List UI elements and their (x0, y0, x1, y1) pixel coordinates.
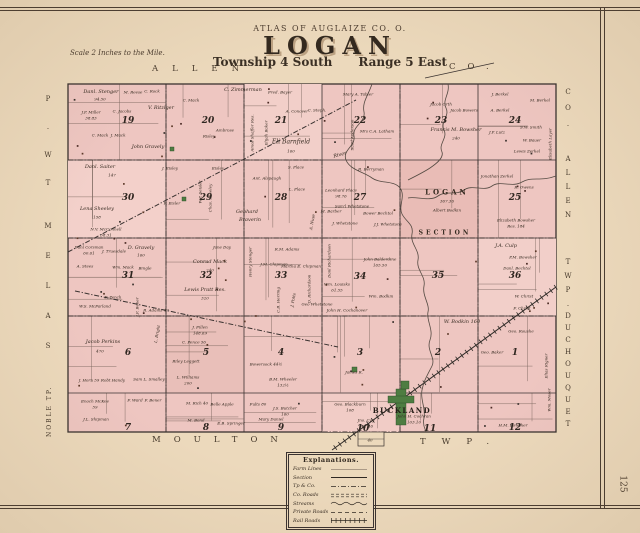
parcel-label: W. Bauer (523, 138, 541, 143)
border-label-moulton-twp: MOULTON (152, 435, 291, 445)
parcel-label: C. Pence 56 (182, 340, 206, 345)
border-label-duchouquet-twp-suffix: TWP. (564, 258, 572, 314)
parcel-label: Geo. Blackburn (334, 402, 365, 407)
parcel-label: 160 (287, 149, 295, 154)
parcel-label: Elijah Baker (264, 121, 269, 146)
parcel-label: Lena Sheeley (80, 206, 114, 212)
parcel-label: F. Christ (513, 306, 530, 311)
section-number: 7 (125, 423, 131, 433)
section-number: 11 (424, 424, 437, 434)
border-label-moulton-twp-suffix: TWP. (420, 437, 505, 447)
parcel-label: 470 (96, 349, 104, 354)
parcel-label: N.V. McConnell (90, 227, 121, 232)
parcel-label: 61.55 (331, 288, 342, 293)
parcel-label: Danl. Bechtol (503, 266, 530, 271)
border-label-noble-tp: NOBLE TP. (46, 373, 53, 437)
legend-row-label: Streams (293, 501, 329, 507)
parcel-label: V. Ritziger (148, 105, 174, 111)
section-number: 33 (275, 271, 288, 281)
parcel-label: F. Ward (127, 398, 142, 403)
legend-title: Explanations. (289, 456, 373, 464)
parcel-label: A. Conover (286, 109, 308, 114)
parcel-label: 132½ (277, 383, 289, 388)
parcel-label: Amos Shaffer Res. (250, 114, 255, 151)
parcel-label: 240 (452, 136, 460, 141)
section-number: 21 (275, 116, 288, 126)
parcel-label: Geo Whetstone (302, 302, 333, 307)
parcel-label: J.P. Miller (81, 110, 100, 115)
section-number: 8 (203, 423, 209, 433)
section-number: 30 (122, 193, 135, 203)
border-label-allen-top: ALLEN (152, 64, 253, 74)
parcel-label: J.J. Whetstone (374, 222, 402, 227)
section-number: 34 (354, 272, 367, 282)
parcel-label: Mary Daniel (258, 417, 283, 422)
parcel-label: J. Mack (111, 133, 126, 138)
section-number: 24 (509, 116, 522, 126)
parcel-label: 59 (92, 405, 97, 410)
parcel-label: Jacob Perkins (86, 339, 121, 345)
legend-row: Tp & Co. (289, 482, 373, 491)
parcel-label: Braverin (239, 217, 261, 223)
section-number: 2 (435, 348, 441, 358)
parcel-label: Danl. Saiter (85, 164, 115, 170)
parcel-label: J.A. Culp (495, 243, 517, 249)
legend-row: Rail Roads (289, 517, 373, 526)
parcel-label: F. Eisler (164, 201, 181, 206)
co-roads-symbol (329, 492, 369, 499)
streams-symbol (329, 500, 369, 507)
legend-row-label: Rail Roads (293, 518, 329, 524)
section-number: 35 (432, 271, 445, 281)
section-number: 25 (509, 193, 522, 203)
section-number: 9 (278, 423, 284, 433)
parcel-label: LOGAN (425, 188, 469, 197)
border-label-allen-co-suffix: CO. (564, 88, 572, 136)
parcel-label: 108 (346, 408, 354, 413)
parcel-label: D. Richardson (307, 275, 312, 304)
parcel-label: John H. Cochran (397, 414, 431, 419)
parcel-label: Wm. Louisks (324, 282, 350, 287)
parcel-label: W.S. McFarland (79, 304, 111, 309)
parcel-label: Riley Leggett (172, 359, 199, 364)
parcel-label: J. Whetstone (332, 221, 358, 226)
parcel-label: M. Berkel (530, 98, 550, 103)
parcel-label: Albert Bodkin (433, 208, 461, 213)
parcel-label: C. Zimmerman (224, 87, 262, 93)
parcel-label: J.P. Lutz (489, 130, 505, 135)
section-number: 32 (200, 271, 213, 281)
parcel-label: D. Gravely (128, 245, 155, 251)
parcel-label: C. Mack (183, 98, 200, 103)
section-number: 22 (354, 116, 367, 126)
parcel-label: 98.76 (335, 194, 346, 199)
parcel-label: L. Williams (177, 375, 200, 380)
parcel-label: Conrad Mack (193, 259, 227, 265)
section-number: 20 (202, 116, 215, 126)
rail-roads-symbol (329, 517, 369, 524)
parcel-label: F. Bener (145, 398, 162, 403)
section-number: 19 (122, 116, 135, 126)
parcel-label: Belle Apple (210, 402, 233, 407)
tp-co-line-symbol (329, 483, 369, 490)
border-label-salem-twp-upper: P.WT (44, 95, 52, 207)
parcel-label: 160 (137, 253, 145, 258)
legend-row-label: Tp & Co. (293, 483, 329, 489)
parcel-label: R. Berryman (358, 167, 384, 172)
parcel-label: F. Pench (105, 295, 122, 300)
parcel-label: M. Rich 40 (186, 401, 208, 406)
parcel-label: C.B. Herring (276, 287, 281, 313)
section-number: 23 (435, 116, 448, 126)
parcel-label: Geo. Baker (481, 350, 503, 355)
section-number: 29 (200, 193, 213, 203)
parcel-label: Enoch McKee (81, 399, 109, 404)
legend-row: Farm Lines (289, 465, 373, 474)
parcel-label: Res. 184 (507, 224, 525, 229)
parcel-label: Henry Stenger (248, 247, 253, 277)
section-number: 3 (357, 348, 363, 358)
parcel-label: E.B. Springer (217, 421, 245, 426)
parcel-label: John Gravely (132, 144, 165, 150)
legend-row-label: Private Roads (293, 509, 329, 515)
legend-row-label: Farm Lines (293, 466, 329, 472)
parcel-label: Lewis Pratt Res. (184, 287, 226, 293)
legend-row: Co. Roads (289, 491, 373, 500)
parcel-label: Robt Handy (101, 378, 125, 383)
parcel-label: Martha E. Chipman (281, 264, 321, 269)
section-line-symbol (329, 474, 369, 481)
parcel-label: W. Bodkin 160 (444, 319, 480, 325)
parcel-label: Bowersock 44½ (250, 362, 282, 367)
section-number: 28 (275, 193, 288, 203)
parcel-label: J. Eisley (162, 166, 178, 171)
parcel-label: C. Jacobs (113, 109, 132, 114)
parcel-label: J.S. Butcher (273, 406, 297, 411)
parcel-label: R.M. Adams (275, 247, 300, 252)
parcel-label: Jno. Coy (358, 418, 375, 423)
parcel-label: Danl. Stenger (83, 89, 118, 95)
parcel-label: Ant. Alspaugh (253, 176, 282, 181)
parcel-label: 40 (367, 438, 372, 443)
parcel-label: M. Reese (124, 90, 143, 95)
parcel-label: C. Mack (92, 133, 109, 138)
parcel-label: J.L. Shipman (83, 417, 109, 422)
parcel-label: Lewis Zerkel (514, 149, 540, 154)
border-label-co-top: CO. (449, 62, 501, 72)
page-number: 125 (618, 475, 628, 492)
section-number: 10 (357, 424, 370, 434)
parcel-label: Elizabeth Bowsher (497, 218, 535, 223)
border-label-allen-co: ALLEN (564, 155, 572, 225)
parcel-label: Wm. Moser (547, 388, 552, 411)
section-number: 27 (354, 193, 367, 203)
section-number: 36 (509, 271, 522, 281)
parcel-label: Danl Corsman (75, 245, 104, 250)
parcel-label: M. Barber (321, 209, 342, 214)
parcel-label: M. Bond (187, 418, 204, 423)
parcel-label: B.M. Wheeler (269, 377, 297, 382)
parcel-label: A. Berkel (491, 108, 510, 113)
parcel-label: Elisabeth Layer (548, 128, 553, 160)
parcel-label: A. Stees (77, 264, 94, 269)
legend-row-label: Co. Roads (293, 492, 329, 498)
section-number: 31 (122, 271, 135, 281)
parcel-label: R. Adams 47 (143, 308, 169, 313)
parcel-label: C. Rock (144, 89, 160, 94)
section-number: 6 (125, 348, 131, 358)
parcel-label: J. Berkel (491, 92, 508, 97)
parcel-label: Jacob Bowers (450, 108, 478, 113)
parcel-label: Elias Rigner (544, 354, 549, 379)
parcel-label: Jane Day (213, 245, 231, 250)
parcel-label: S. Place (288, 165, 304, 170)
parcel-label: Danl Richardson (327, 244, 332, 278)
parcel-label: Sam L. Smalley (133, 377, 165, 382)
parcel-label: 38.83 (85, 116, 96, 121)
parcel-label: 165.50 (373, 263, 387, 268)
parcel-label: 103.10 (407, 420, 421, 425)
parcel-label: Wm. Mack (112, 265, 134, 270)
legend-row: Section (289, 474, 373, 483)
parcel-label: 320 (201, 296, 209, 301)
farm-lines-symbol (329, 466, 369, 473)
parcel-label: Fults 80 (250, 402, 267, 407)
parcel-label: Jacob Orth (430, 102, 452, 107)
parcel-label: R. Owens (514, 185, 533, 190)
atlas-page: ATLAS OF AUGLAIZE CO. O. LOGAN Township … (0, 0, 640, 533)
legend-box: Explanations. Farm Lines Section Tp & Co… (288, 454, 374, 528)
legend-row-label: Section (293, 475, 329, 481)
parcel-label: W. Christ (515, 294, 533, 299)
parcel-label: P.M. Bowsher (509, 255, 536, 260)
section-number: 5 (203, 348, 209, 358)
legend-row: Streams (289, 499, 373, 508)
parcel-label: Eli Barnfield (272, 139, 310, 146)
section-number: 4 (278, 348, 284, 358)
parcel-label: 147 (108, 173, 116, 178)
parcel-label: 367.36 (440, 199, 454, 204)
parcel-label: James R. (345, 370, 363, 375)
parcel-label: 94.50 (94, 97, 105, 102)
parcel-label: SECTION (419, 230, 472, 237)
parcel-label: S.W. Smith (520, 125, 542, 130)
parcel-label: C. Steph. (308, 108, 327, 113)
parcel-label: Eisley (212, 166, 224, 171)
parcel-label: John H. Cochanover (327, 308, 368, 313)
parcel-label: Bingle (138, 266, 151, 271)
parcel-label: 60.61 (83, 251, 94, 256)
parcel-label: 148.69 (193, 331, 207, 336)
section-number: 12 (509, 423, 522, 433)
parcel-label: Mary A. Tabler (343, 92, 373, 97)
parcel-label: Fred. Bayer (268, 90, 292, 95)
border-label-duchouquet-twp: DUCHOUQUET (564, 312, 572, 432)
parcel-label: J.F. Bener (135, 297, 140, 316)
legend-row: Private Roads (289, 508, 373, 517)
parcel-label: 158 (93, 215, 101, 220)
parcel-label: Ambrose (216, 128, 234, 133)
parcel-label: J. Horn 59 (79, 378, 100, 383)
border-label-salem-twp-lower: MELAS (44, 222, 52, 372)
parcel-label: Francis M. Bowsher (430, 127, 481, 133)
parcel-label: John Balderdine (364, 257, 397, 262)
parcel-label: Geo. Roushe (508, 329, 533, 334)
parcel-label: Leonhard Place (325, 188, 357, 193)
parcel-label: Gebhard (236, 209, 258, 215)
parcel-label: 200 (184, 381, 192, 386)
parcel-label: Jonathan Zerkel (481, 174, 514, 179)
parcel-label: J. Fillen (192, 325, 207, 330)
section-number: 1 (512, 348, 518, 358)
parcel-label: Bower Bechtol (363, 211, 393, 216)
parcel-label: L. Place (289, 187, 305, 192)
parcel-label: Sam'l Whetstone (335, 204, 369, 209)
parcel-label: Risley (203, 134, 215, 139)
parcel-label: 58.31 (100, 233, 111, 238)
private-roads-symbol (329, 509, 369, 516)
parcel-label: Mrs C.A. Latham (360, 129, 394, 134)
parcel-label: Wm. Bodkin (369, 294, 394, 299)
parcel-label: J. Truesdale (102, 249, 126, 254)
